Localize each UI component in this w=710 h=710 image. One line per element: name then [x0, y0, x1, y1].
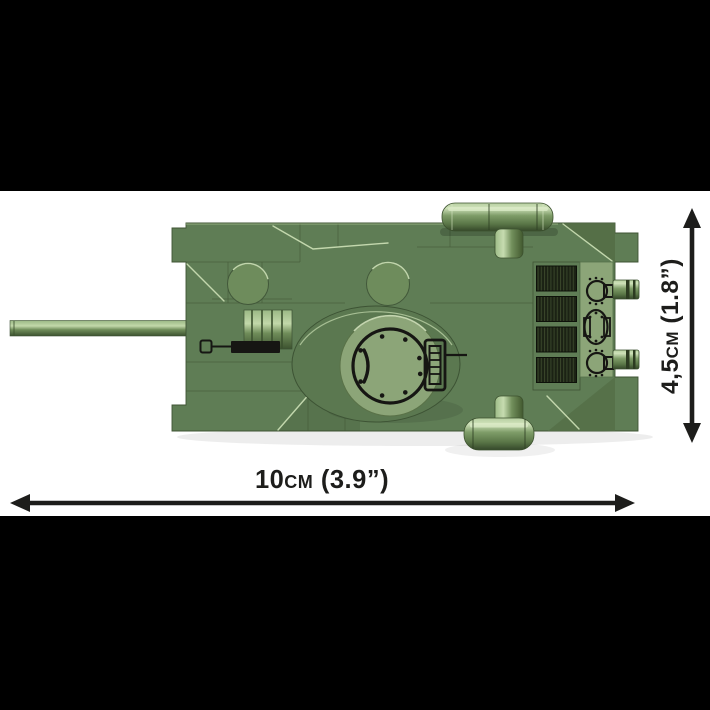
product-image: 10cm (3.9”) 4,5cm (1.8”) [0, 0, 710, 710]
width-dimension-label: 10cm (3.9”) [255, 466, 389, 494]
height-dimension-arrow: 4,5cm (1.8”) [657, 208, 701, 443]
drop-shadow [177, 428, 653, 457]
height-dimension-label: 4,5cm (1.8”) [657, 258, 684, 394]
rear-pins [613, 280, 639, 369]
width-dimension-arrow: 10cm (3.9”) [10, 466, 635, 512]
hull-mg-print [201, 341, 281, 354]
engine-grille [533, 262, 580, 390]
rear-deck-plate [580, 262, 613, 377]
tank-illustration: 10cm (3.9”) 4,5cm (1.8”) [0, 0, 710, 710]
